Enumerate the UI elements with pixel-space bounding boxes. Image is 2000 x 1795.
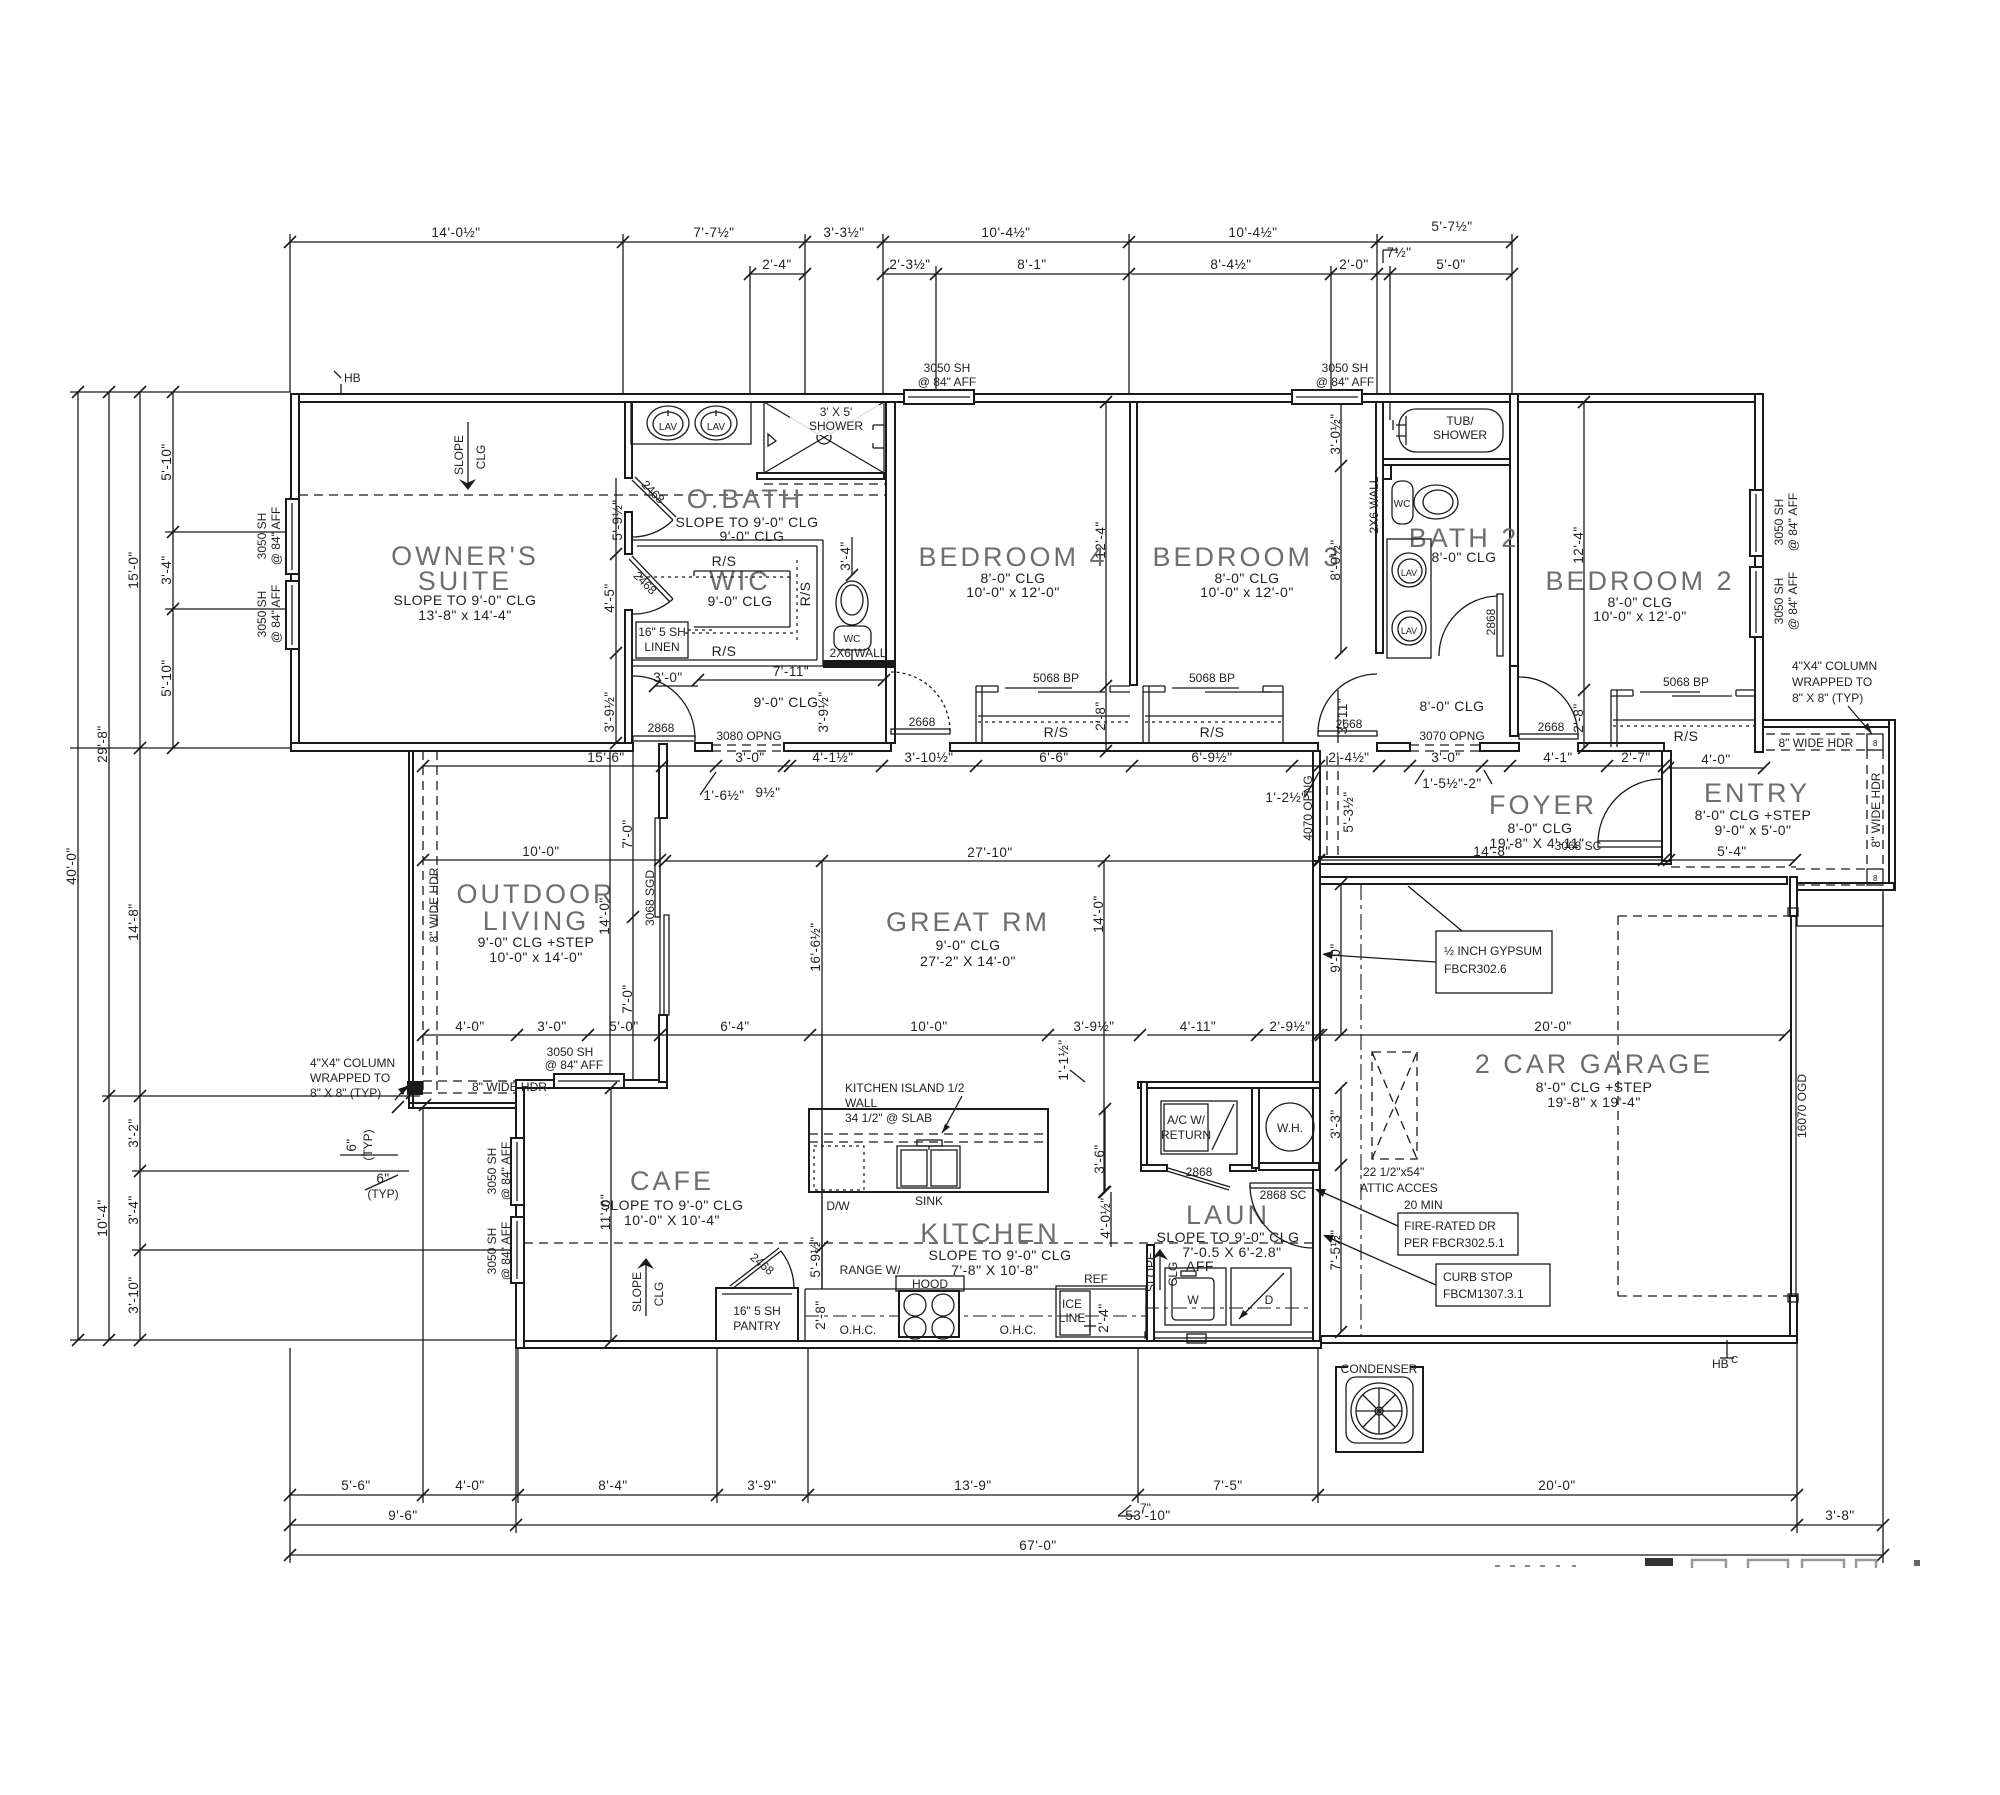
svg-text:3'-0": 3'-0" [537,1019,566,1034]
svg-text:@ 84" AFF: @ 84" AFF [918,375,976,389]
svg-text:4070 OPNG: 4070 OPNG [1301,775,1315,840]
svg-text:15'-0": 15'-0" [126,551,141,588]
svg-text:2668: 2668 [909,715,936,729]
svg-text:8'-0½": 8'-0½" [1328,539,1343,580]
svg-text:7'-7½": 7'-7½" [693,225,734,240]
svg-text:2'-8": 2'-8" [1571,703,1586,732]
svg-text:WRAPPED TO: WRAPPED TO [310,1071,390,1085]
svg-text:4'-0": 4'-0" [455,1478,484,1493]
svg-text:1'-2½": 1'-2½" [1265,790,1306,805]
svg-text:2868: 2868 [648,721,675,735]
svg-text:3'-0": 3'-0" [1431,750,1460,765]
svg-text:2X6 WALL: 2X6 WALL [830,646,887,660]
svg-text:2'-8": 2'-8" [1093,701,1108,730]
svg-text:3' X 5': 3' X 5' [820,405,853,419]
svg-text:8" WIDE HDR: 8" WIDE HDR [472,1080,547,1094]
svg-text:HB: HB [344,371,361,385]
svg-text:BEDROOM 4: BEDROOM 4 [918,542,1107,572]
svg-text:SLOPE TO 9'-0" CLG: SLOPE TO 9'-0" CLG [929,1247,1072,1263]
svg-text:2'-7": 2'-7" [1621,750,1650,765]
svg-text:20 MIN: 20 MIN [1404,1198,1443,1212]
svg-text:5'-0": 5'-0" [609,1019,638,1034]
svg-text:4'-1": 4'-1" [1543,750,1572,765]
svg-text:FBCR302.6: FBCR302.6 [1444,962,1507,976]
svg-text:10'-0": 10'-0" [910,1019,947,1034]
svg-text:4'-11": 4'-11" [1180,1019,1216,1034]
svg-text:SLOPE TO 9'-0" CLG: SLOPE TO 9'-0" CLG [601,1197,744,1213]
svg-text:2'-4": 2'-4" [762,257,791,272]
svg-text:4'-1½": 4'-1½" [812,750,853,765]
svg-text:8'-0" CLG: 8'-0" CLG [1507,820,1572,836]
svg-text:3050 SH: 3050 SH [485,1148,499,1195]
svg-text:2'-4": 2'-4" [1096,1303,1111,1332]
svg-text:8" WIDE HDR: 8" WIDE HDR [1869,772,1883,847]
svg-text:3080 OPNG: 3080 OPNG [716,729,781,743]
svg-text:8: 8 [1873,739,1878,748]
svg-text:(TYP): (TYP) [361,1129,375,1160]
svg-text:3050 SH: 3050 SH [255,513,269,560]
svg-text:5068 BP: 5068 BP [1189,671,1235,685]
svg-text:9'-6": 9'-6" [388,1508,417,1523]
svg-text:RETURN: RETURN [1161,1128,1211,1142]
svg-text:8" WIDE HDR: 8" WIDE HDR [1779,736,1854,750]
svg-text:FBCM1307.3.1: FBCM1307.3.1 [1443,1287,1524,1301]
svg-text:3'-9½": 3'-9½" [816,691,831,732]
svg-text:R/S: R/S [712,553,737,569]
svg-text:8'-0" CLG: 8'-0" CLG [1419,698,1484,714]
svg-text:8" X 8" (TYP): 8" X 8" (TYP) [1792,691,1863,705]
svg-text:13'-9": 13'-9" [954,1478,991,1493]
svg-text:8'-4": 8'-4" [598,1478,627,1493]
svg-text:@ 84" AFF: @ 84" AFF [269,585,283,643]
svg-text:3'-9½": 3'-9½" [602,691,617,732]
svg-text:R/S: R/S [1674,728,1699,744]
svg-text:13'-8" x 14'-4": 13'-8" x 14'-4" [418,607,512,623]
svg-text:9'-0" CLG: 9'-0" CLG [707,593,772,609]
svg-text:R/S: R/S [712,643,737,659]
svg-text:FOYER: FOYER [1489,790,1597,820]
svg-text:16'-6½": 16'-6½" [808,922,823,971]
svg-text:3'-9½": 3'-9½" [1073,1019,1114,1034]
svg-text:W.H.: W.H. [1277,1121,1303,1135]
svg-text:CAFE: CAFE [630,1166,714,1196]
svg-text:10'-4": 10'-4" [95,1199,110,1236]
svg-text:SLOPE: SLOPE [1144,1252,1158,1292]
svg-text:8'-0" CLG +STEP: 8'-0" CLG +STEP [1536,1079,1653,1095]
svg-text:2'-9½": 2'-9½" [1269,1019,1310,1034]
svg-text:SINK: SINK [915,1194,943,1208]
svg-text:16" 5 SH: 16" 5 SH [733,1304,781,1318]
svg-text:6'-6": 6'-6" [1039,750,1068,765]
svg-text:5'-9½": 5'-9½" [610,499,625,540]
svg-text:RANGE W/: RANGE W/ [840,1263,901,1277]
svg-text:R/S: R/S [1044,724,1069,740]
svg-text:5068 BP: 5068 BP [1033,671,1079,685]
svg-text:27'-10": 27'-10" [967,845,1012,860]
svg-text:3'-10½": 3'-10½" [904,750,953,765]
svg-text:3'-0": 3'-0" [653,670,682,685]
svg-text:34 1/2" @ SLAB: 34 1/2" @ SLAB [845,1111,932,1125]
svg-text:2'-3½": 2'-3½" [889,257,930,272]
svg-text:8'-0" CLG +STEP: 8'-0" CLG +STEP [1695,807,1812,823]
svg-text:BEDROOM 3: BEDROOM 3 [1152,542,1341,572]
svg-text:WRAPPED TO: WRAPPED TO [1792,675,1872,689]
svg-text:7": 7" [1140,1501,1151,1515]
svg-text:4"X4" COLUMN: 4"X4" COLUMN [310,1056,395,1070]
svg-text:2868 SC: 2868 SC [1260,1188,1307,1202]
svg-text:5'-10": 5'-10" [159,443,174,480]
svg-text:O.BATH: O.BATH [687,484,804,514]
svg-text:SLOPE: SLOPE [630,1272,644,1312]
svg-text:14'-8": 14'-8" [126,903,141,940]
svg-text:ENTRY: ENTRY [1704,778,1810,808]
svg-text:KITCHEN: KITCHEN [920,1218,1060,1248]
svg-text:7'-0": 7'-0" [620,984,635,1013]
svg-text:8'-0" CLG: 8'-0" CLG [1431,549,1496,565]
svg-text:C: C [1731,1355,1738,1366]
svg-text:WC: WC [1394,499,1411,510]
svg-text:9'-0" CLG: 9'-0" CLG [719,528,784,544]
svg-text:20'-0": 20'-0" [1534,1019,1571,1034]
svg-text:3'-10": 3'-10" [126,1276,141,1313]
svg-text:16070 OGD: 16070 OGD [1795,1074,1809,1138]
svg-text:KITCHEN ISLAND 1/2: KITCHEN ISLAND 1/2 [845,1081,965,1095]
svg-text:CLG: CLG [652,1282,666,1307]
svg-text:4"X4" COLUMN: 4"X4" COLUMN [1792,659,1877,673]
svg-text:5'-4": 5'-4" [1717,844,1746,859]
svg-text:2'-4½": 2'-4½" [1328,750,1369,765]
svg-text:7'-5": 7'-5" [1213,1478,1242,1493]
svg-text:CONDENSER: CONDENSER [1341,1362,1418,1376]
svg-text:2'-0": 2'-0" [1339,257,1368,272]
svg-text:10'-4½": 10'-4½" [1228,225,1277,240]
svg-text:9'-0" CLG: 9'-0" CLG [935,937,1000,953]
svg-text:REF: REF [1084,1272,1108,1286]
svg-text:4'-0": 4'-0" [1701,752,1730,767]
svg-text:11'-0": 11'-0" [598,1194,613,1230]
svg-text:10'-0" x 12'-0": 10'-0" x 12'-0" [1200,584,1294,600]
svg-text:14'-8": 14'-8" [1473,844,1510,859]
svg-text:LINEN: LINEN [644,640,679,654]
svg-text:3050 SH: 3050 SH [485,1228,499,1275]
svg-text:LAV: LAV [1401,626,1417,636]
svg-text:CURB STOP: CURB STOP [1443,1270,1513,1284]
svg-text:3050 SH: 3050 SH [1322,361,1369,375]
svg-text:4'-0½": 4'-0½" [1098,1197,1113,1238]
svg-text:6'-4": 6'-4" [720,1019,749,1034]
svg-text:½ INCH GYPSUM: ½ INCH GYPSUM [1444,944,1542,958]
svg-text:LAV: LAV [1401,568,1417,578]
svg-text:5068 BP: 5068 BP [1663,675,1709,689]
svg-text:1'-1½": 1'-1½" [1056,1039,1071,1080]
svg-text:W: W [1187,1293,1199,1307]
svg-text:5'-7½": 5'-7½" [1431,219,1472,234]
svg-text:5'-9½": 5'-9½" [808,1236,823,1277]
svg-text:SLOPE: SLOPE [452,435,466,475]
svg-text:3050 SH: 3050 SH [547,1045,594,1059]
svg-text:2'-8": 2'-8" [813,1300,828,1329]
svg-text:3050 SH: 3050 SH [1772,499,1786,546]
svg-text:3070 OPNG: 3070 OPNG [1419,729,1484,743]
svg-text:LINE: LINE [1059,1311,1086,1325]
svg-text:40'-0": 40'-0" [64,847,79,884]
svg-text:3068 SGD: 3068 SGD [643,870,657,926]
svg-text:@ 84" AFF: @ 84" AFF [545,1058,603,1072]
svg-text:19'-8" x 19'-4": 19'-8" x 19'-4" [1547,1094,1641,1110]
svg-text:27'-2" X 14'-0": 27'-2" X 14'-0" [920,953,1016,969]
svg-text:2 CAR GARAGE: 2 CAR GARAGE [1475,1049,1714,1079]
svg-text:R/S: R/S [1200,724,1225,740]
svg-text:9'-0" CLG +STEP: 9'-0" CLG +STEP [478,934,595,950]
svg-text:16" 5 SH: 16" 5 SH [638,625,686,639]
svg-text:14'-0": 14'-0" [597,897,612,934]
svg-text:1'-6½": 1'-6½" [703,788,744,803]
svg-text:20'-0": 20'-0" [1538,1478,1575,1493]
svg-text:PER FBCR302.5.1: PER FBCR302.5.1 [1404,1236,1505,1250]
svg-text:@ 84" AFF: @ 84" AFF [1316,375,1374,389]
svg-text:3'-4": 3'-4" [159,555,174,584]
svg-text:3050 SH: 3050 SH [255,591,269,638]
svg-text:3'-4": 3'-4" [126,1195,141,1224]
svg-text:6'-9½": 6'-9½" [1191,750,1232,765]
svg-text:5'-6": 5'-6" [341,1478,370,1493]
svg-text:2868: 2868 [1484,608,1498,635]
svg-text:CLG: CLG [474,445,488,470]
svg-text:4'-5": 4'-5" [602,583,617,612]
svg-text:A/C W/: A/C W/ [1167,1113,1206,1127]
svg-text:OUTDOOR: OUTDOOR [457,879,616,909]
svg-text:5'-3½": 5'-3½" [1341,791,1356,832]
svg-text:LAV: LAV [659,422,677,433]
svg-text:WALL: WALL [845,1096,878,1110]
svg-text:12'-4": 12'-4" [1093,521,1108,558]
svg-text:@ 84" AFF: @ 84" AFF [499,1142,513,1200]
svg-text:10'-0" x 14'-0": 10'-0" x 14'-0" [489,949,583,965]
svg-text:3'-0": 3'-0" [735,750,764,765]
svg-text:8" X 8" (TYP): 8" X 8" (TYP) [310,1086,381,1100]
svg-text:3'-0½": 3'-0½" [1328,413,1343,454]
svg-text:10'-0" x 12'-0": 10'-0" x 12'-0" [1593,608,1687,624]
svg-text:3'-11": 3'-11" [1335,698,1350,734]
svg-text:2X6 WALL: 2X6 WALL [1367,476,1381,533]
svg-text:10'-0" x 12'-0": 10'-0" x 12'-0" [966,584,1060,600]
svg-text:15'-6": 15'-6" [587,750,624,765]
svg-text:3'-9": 3'-9" [747,1478,776,1493]
svg-text:3'-3½": 3'-3½" [823,225,864,240]
svg-text:3'-4": 3'-4" [838,541,853,570]
svg-text:WC: WC [844,634,861,645]
svg-text:D/W: D/W [826,1199,850,1213]
svg-text:8" WIDE HDR: 8" WIDE HDR [427,867,441,942]
svg-text:O.H.C.: O.H.C. [1000,1323,1037,1337]
svg-text:4'-0": 4'-0" [455,1019,484,1034]
svg-text:SLOPE TO 9'-0" CLG: SLOPE TO 9'-0" CLG [394,592,537,608]
svg-text:@ 84" AFF: @ 84" AFF [1786,493,1800,551]
svg-text:9½": 9½" [755,785,780,800]
svg-text:10'-4½": 10'-4½" [981,225,1030,240]
svg-text:3'-2": 3'-2" [126,1118,141,1147]
svg-text:8: 8 [1873,874,1878,883]
svg-text:CLG: CLG [1166,1262,1180,1287]
svg-text:LIVING: LIVING [483,906,590,936]
svg-text:9'-0" x 5'-0": 9'-0" x 5'-0" [1714,822,1791,838]
svg-text:8'-4½": 8'-4½" [1210,257,1251,272]
svg-text:R/S: R/S [797,582,813,607]
svg-text:O.H.C.: O.H.C. [840,1323,877,1337]
svg-text:PANTRY: PANTRY [733,1319,781,1333]
svg-text:29'-8": 29'-8" [95,725,110,762]
svg-text:67'-0": 67'-0" [1019,1538,1056,1553]
svg-text:5'-0": 5'-0" [1436,257,1465,272]
svg-text:7½": 7½" [1386,245,1411,260]
svg-text:9'-0" CLG: 9'-0" CLG [753,694,818,710]
svg-text:8'-1": 8'-1" [1017,257,1046,272]
svg-text:SHOWER: SHOWER [1433,428,1487,442]
svg-text:3050 SH: 3050 SH [1772,578,1786,625]
svg-text:5'-10": 5'-10" [159,659,174,696]
svg-text:@ 84" AFF: @ 84" AFF [269,507,283,565]
svg-text:1'-5½"-2": 1'-5½"-2" [1422,776,1481,791]
svg-text:10'-0": 10'-0" [522,844,559,859]
svg-text:2668: 2668 [1538,720,1565,734]
svg-text:@ 84" AFF: @ 84" AFF [499,1222,513,1280]
svg-text:12'-4": 12'-4" [1571,526,1586,563]
svg-text:7'-0": 7'-0" [620,819,635,848]
svg-text:SHOWER: SHOWER [809,419,863,433]
svg-text:3'-3": 3'-3" [1328,1109,1343,1138]
svg-text:10'-0" X 10'-4": 10'-0" X 10'-4" [624,1212,720,1228]
svg-text:BEDROOM 2: BEDROOM 2 [1545,566,1734,596]
svg-text:22 1/2"x54": 22 1/2"x54" [1363,1165,1424,1179]
svg-text:ICE: ICE [1062,1297,1082,1311]
svg-text:LAV: LAV [707,422,725,433]
svg-text:3050 SH: 3050 SH [924,361,971,375]
svg-text:D: D [1265,1293,1274,1307]
svg-text:14'-0": 14'-0" [1091,895,1106,932]
svg-text:GREAT RM: GREAT RM [886,907,1050,937]
svg-text:(TYP): (TYP) [367,1187,398,1201]
svg-text:3'-8": 3'-8" [1825,1508,1854,1523]
svg-text:@ 84" AFF: @ 84" AFF [1786,572,1800,630]
svg-text:FIRE-RATED DR: FIRE-RATED DR [1404,1219,1496,1233]
svg-text:TUB/: TUB/ [1446,414,1474,428]
svg-text:HB: HB [1712,1357,1729,1371]
svg-text:6": 6" [344,1138,359,1151]
svg-text:14'-0½": 14'-0½" [431,225,480,240]
svg-text:ATTIC ACCES: ATTIC ACCES [1360,1181,1438,1195]
